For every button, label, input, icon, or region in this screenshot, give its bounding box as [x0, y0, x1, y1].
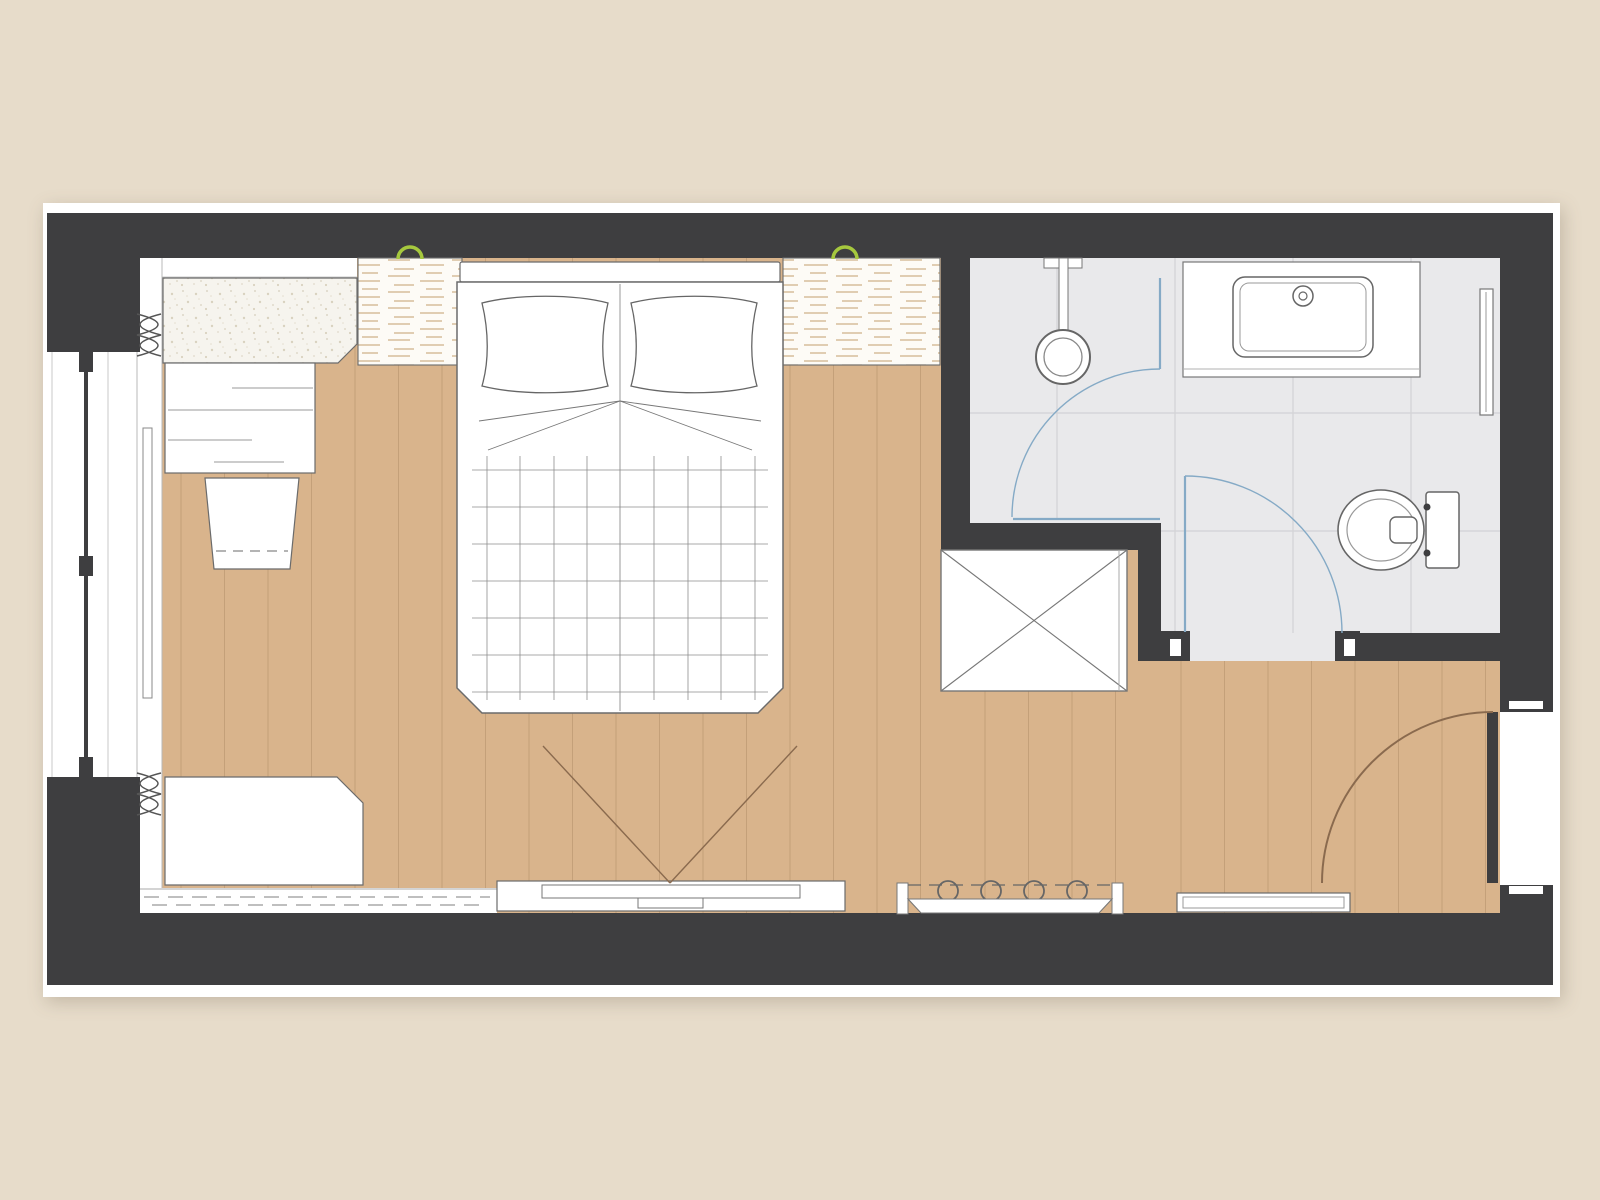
floor-plan — [0, 0, 1600, 1200]
wall-right-lower — [1500, 885, 1553, 985]
wall-bathroom-return — [1138, 550, 1161, 661]
coatrack-post-right — [1112, 883, 1123, 914]
entry-door-leaf — [1487, 712, 1498, 883]
coatrack-post-left — [897, 883, 908, 914]
wall-left-upper — [47, 213, 140, 352]
bath-door-frame-slot-right — [1344, 639, 1355, 656]
headwall-ledge — [162, 258, 357, 278]
entry-console — [1177, 893, 1350, 912]
entry-door-frame-slot-top — [1509, 701, 1543, 709]
wall-bathroom-south — [1360, 633, 1553, 661]
coatrack-bench — [908, 899, 1112, 913]
wall-bottom — [47, 913, 1553, 985]
tv-screen — [542, 885, 800, 898]
bed-headboard — [460, 262, 780, 282]
bed-pillow-right — [631, 296, 757, 393]
window-mullion-middle — [79, 556, 93, 576]
bed-pillow-left — [482, 296, 608, 393]
nightstand-right — [783, 258, 940, 365]
window-mullion-bottom — [79, 757, 93, 777]
vanity-faucet — [1293, 286, 1313, 306]
desk-chair — [205, 478, 299, 569]
wall-bathroom-stub — [941, 523, 1161, 550]
bath-door-frame-slot-left — [1170, 639, 1181, 656]
entry-wood-floor-east — [1138, 661, 1500, 913]
tv-stand — [638, 898, 703, 908]
toilet-flush-button — [1390, 517, 1417, 543]
sill-band — [137, 888, 497, 913]
wall-bathroom-west — [941, 258, 970, 550]
desk-top — [163, 278, 357, 363]
toilet-tank — [1426, 492, 1459, 568]
window-bench — [165, 777, 363, 885]
dresser — [165, 363, 315, 473]
entry-door-frame-slot-bottom — [1509, 886, 1543, 894]
curtain-track — [143, 428, 152, 698]
window-mullion-top — [79, 352, 93, 372]
nightstand-left — [358, 258, 462, 365]
wall-top — [47, 213, 1553, 258]
floor-plan-content — [43, 203, 1560, 997]
